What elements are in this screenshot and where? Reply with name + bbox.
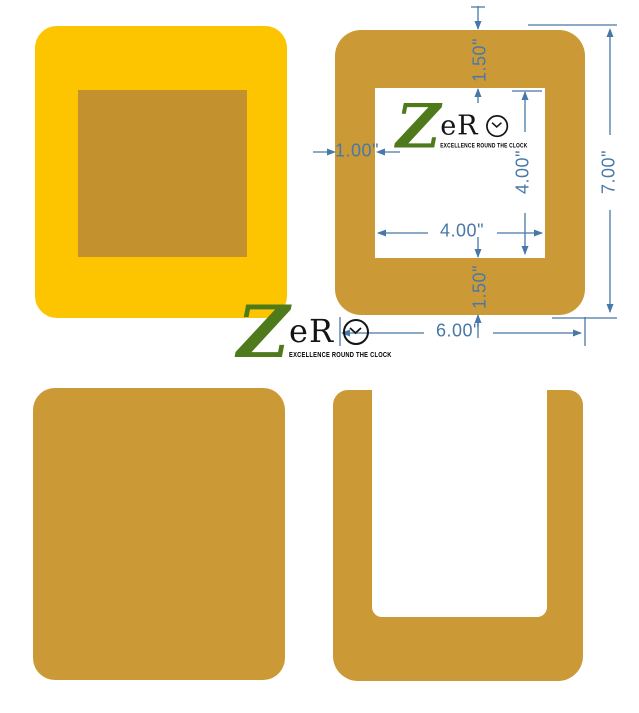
product-technical-drawing: 1.50" 1.00" 4.00" 4.00" 1.50" 6.00" 7.00… <box>0 0 639 713</box>
logo-clock-o-icon <box>343 319 369 345</box>
logo-letters-er: eR <box>289 314 334 348</box>
logo-tagline: EXCELLENCE ROUND THE CLOCK <box>440 143 527 149</box>
yellow-frame-shape <box>35 26 287 318</box>
solid-tan-square-shape <box>33 388 285 680</box>
u-channel-notch <box>372 390 547 617</box>
dim-label-inner-width: 4.00" <box>440 221 484 242</box>
zero-brand-logo: Z eR EXCELLENCE ROUND THE CLOCK <box>237 306 377 378</box>
dim-label-top-border: 1.50" <box>470 38 491 82</box>
logo-clock-o-icon <box>486 115 508 137</box>
dim-label-bottom-border: 1.50" <box>470 265 491 309</box>
tan-frame-shape <box>335 30 585 315</box>
logo-letter-z: Z <box>237 296 290 368</box>
clock-hands-icon <box>345 321 366 342</box>
clock-hands-icon <box>488 117 506 135</box>
dim-label-outer-height: 7.00" <box>599 150 620 194</box>
dim-label-outer-width: 6.00" <box>436 321 480 342</box>
yellow-frame-inner-square <box>78 90 247 257</box>
logo-letter-z: Z <box>396 96 441 157</box>
zero-brand-logo-in-frame: Z eR EXCELLENCE ROUND THE CLOCK <box>396 104 515 165</box>
tan-u-channel-shape <box>333 390 583 681</box>
logo-letters-er: eR <box>440 111 478 140</box>
dim-label-left-border: 1.00" <box>335 141 379 162</box>
dim-label-inner-height: 4.00" <box>513 150 534 194</box>
logo-tagline: EXCELLENCE ROUND THE CLOCK <box>289 352 392 359</box>
